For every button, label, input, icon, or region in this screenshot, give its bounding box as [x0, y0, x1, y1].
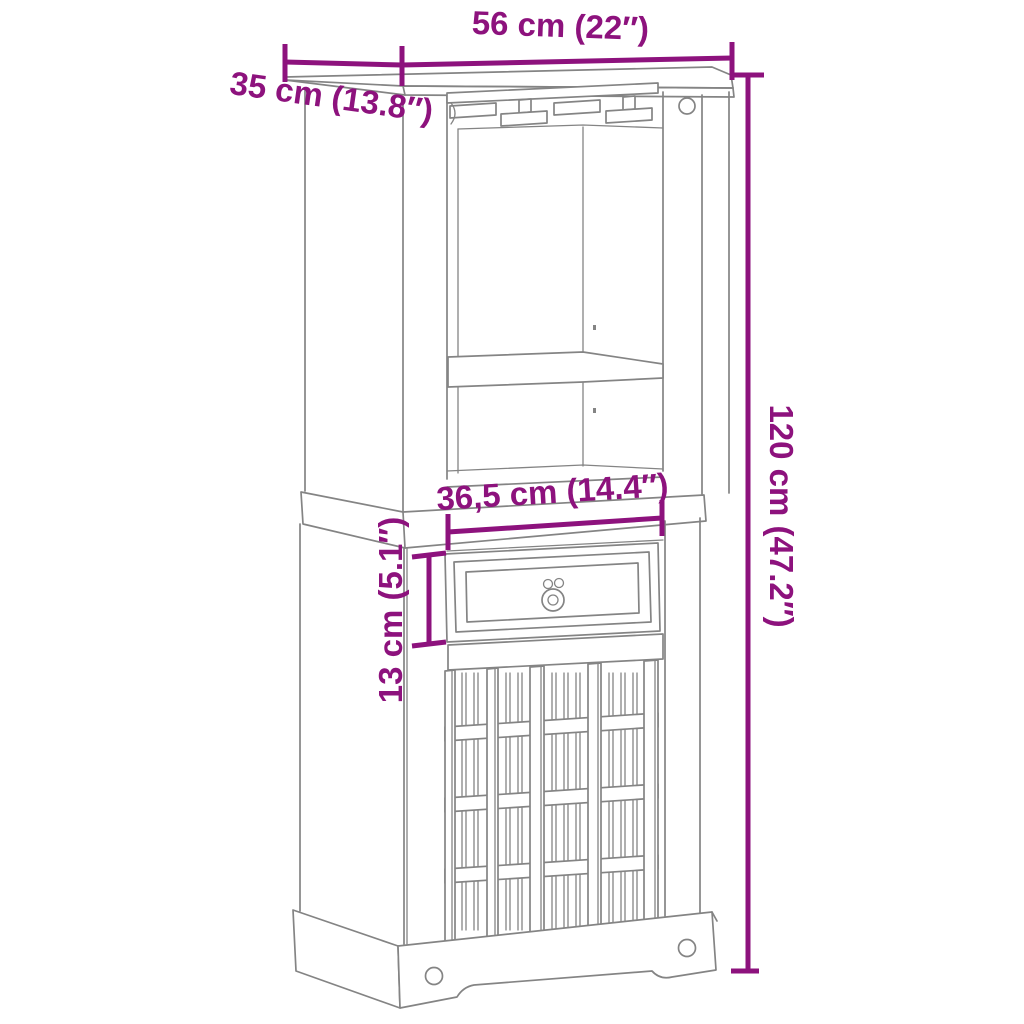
middle-shelf	[448, 352, 663, 387]
upper-hutch	[305, 90, 729, 512]
wood-peg	[426, 968, 443, 985]
shelf-pin-hole	[593, 408, 596, 413]
wine-cabinet-dimension-diagram: 56 cm (22″) 35 cm (13.8″) 120 cm (47.2″)…	[0, 0, 1024, 1024]
width-depth-dimension-line	[285, 42, 732, 86]
shelf-pin-hole	[593, 325, 596, 330]
wood-peg	[679, 940, 696, 957]
bottle-rack	[445, 660, 658, 942]
diagram-canvas: 56 cm (22″) 35 cm (13.8″) 120 cm (47.2″)…	[0, 0, 1024, 1024]
drawer-height-dimension-line	[412, 553, 446, 646]
plinth-base	[293, 910, 717, 1008]
wood-peg	[679, 98, 695, 114]
drawer-height-label: 13 cm (5.1″)	[372, 517, 409, 703]
drawer	[445, 543, 663, 670]
glass-rack	[447, 83, 658, 126]
height-label: 120 cm (47.2″)	[763, 404, 800, 627]
height-dimension-line	[731, 75, 764, 971]
cabinet-line-art	[285, 67, 734, 1008]
width-label: 56 cm (22″)	[471, 4, 649, 47]
